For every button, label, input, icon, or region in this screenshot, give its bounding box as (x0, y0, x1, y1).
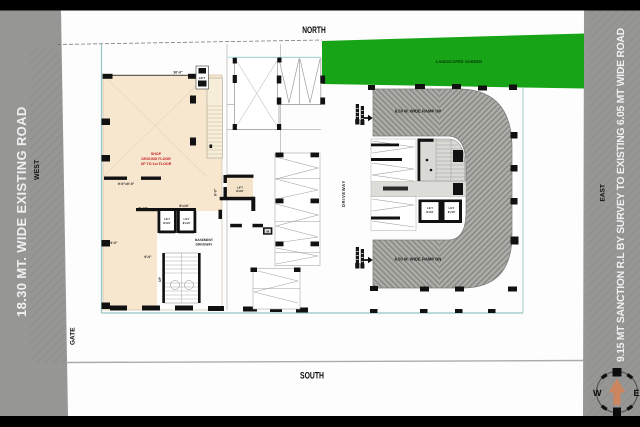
svg-text:SOUTH: SOUTH (300, 370, 324, 381)
svg-text:LIFT: LIFT (199, 76, 205, 80)
svg-text:8'x10': 8'x10' (448, 210, 456, 214)
svg-text:18.30 MT. WIDE EXISTING ROAD: 18.30 MT. WIDE EXISTING ROAD (14, 106, 29, 317)
svg-text:WEST: WEST (34, 159, 41, 180)
svg-text:BASEMENT: BASEMENT (195, 238, 213, 242)
svg-text:DRIVEWAY: DRIVEWAY (341, 180, 346, 207)
svg-text:LANDSCAPED GARDEN: LANDSCAPED GARDEN (436, 59, 482, 64)
svg-text:30'-0": 30'-0" (173, 71, 183, 75)
svg-text:6.50 M. WIDE RAMP DN: 6.50 M. WIDE RAMP DN (395, 257, 442, 262)
svg-text:NORTH: NORTH (302, 24, 326, 35)
svg-text:E: E (634, 388, 640, 398)
svg-text:6.50 M. WIDE RAMP UP: 6.50 M. WIDE RAMP UP (395, 109, 442, 114)
svg-text:8'-0": 8'-0" (214, 188, 218, 196)
svg-text:8'x10': 8'x10' (236, 189, 244, 193)
svg-text:GATE: GATE (70, 327, 77, 345)
svg-text:SHOP: SHOP (151, 152, 162, 156)
svg-text:8'x10': 8'x10' (163, 221, 171, 225)
svg-text:9'-0"x9'-0": 9'-0"x9'-0" (118, 182, 135, 186)
svg-text:9'-0": 9'-0" (110, 241, 118, 245)
svg-text:9'-0": 9'-0" (144, 255, 152, 259)
svg-text:W: W (593, 388, 602, 398)
svg-text:DRIVEWAY: DRIVEWAY (196, 243, 214, 247)
svg-text:8'x10': 8'x10' (426, 210, 434, 214)
svg-text:8'x10': 8'x10' (183, 221, 191, 225)
svg-text:UP: UP (158, 277, 162, 282)
svg-text:GROUND FLOOR: GROUND FLOOR (141, 157, 171, 161)
svg-text:9.15 MT SANCTION R.L BY SURVEY: 9.15 MT SANCTION R.L BY SURVEY TO EXISTI… (616, 27, 627, 362)
svg-text:8'x10': 8'x10' (179, 204, 188, 208)
svg-text:UP TO 1st FLOOR: UP TO 1st FLOOR (141, 162, 172, 166)
svg-text:EAST: EAST (600, 184, 607, 201)
